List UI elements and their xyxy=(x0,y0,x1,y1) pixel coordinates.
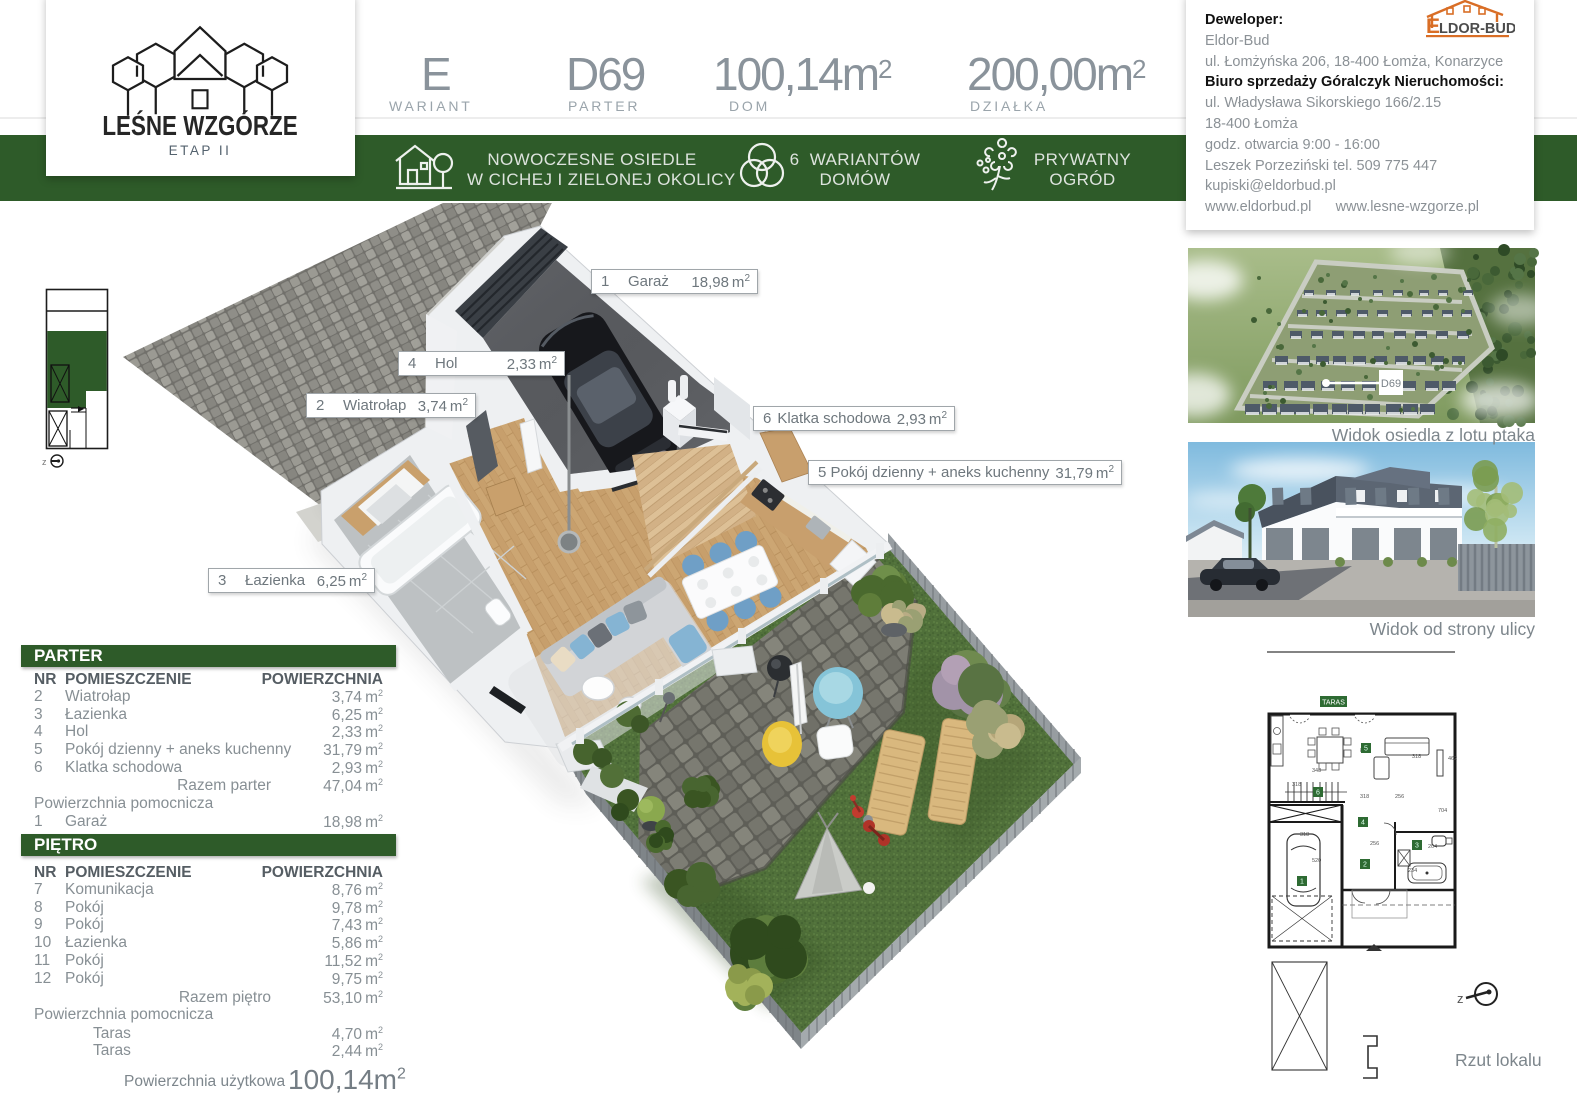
svg-text:z: z xyxy=(42,457,47,467)
svg-text:256: 256 xyxy=(1370,841,1379,847)
svg-text:D69: D69 xyxy=(1381,378,1401,390)
svg-text:204: 204 xyxy=(1428,844,1437,850)
svg-text:318: 318 xyxy=(1412,754,1421,760)
svg-text:3: 3 xyxy=(1415,843,1419,850)
svg-text:ETAP II: ETAP II xyxy=(169,143,232,158)
svg-text:462: 462 xyxy=(1448,756,1457,762)
svg-text:4: 4 xyxy=(1361,820,1365,827)
svg-text:LEŚNE WZGÓRZE: LEŚNE WZGÓRZE xyxy=(102,108,297,141)
svg-text:348: 348 xyxy=(1312,768,1321,774)
svg-text:1: 1 xyxy=(1300,879,1304,886)
svg-text:318: 318 xyxy=(1292,782,1301,788)
svg-text:2: 2 xyxy=(1363,862,1367,869)
svg-text:256: 256 xyxy=(1395,794,1404,800)
svg-text:z: z xyxy=(1457,991,1464,1006)
svg-text:318: 318 xyxy=(1300,832,1309,838)
svg-text:704: 704 xyxy=(1438,808,1447,814)
svg-text:E: E xyxy=(1426,15,1440,38)
svg-text:LDOR-BUD: LDOR-BUD xyxy=(1439,21,1515,37)
svg-text:318: 318 xyxy=(1360,794,1369,800)
svg-text:5: 5 xyxy=(1364,746,1368,753)
svg-text:6: 6 xyxy=(1316,790,1320,797)
svg-text:TARAS: TARAS xyxy=(1322,700,1345,707)
svg-text:520: 520 xyxy=(1312,858,1321,864)
svg-text:234: 234 xyxy=(1408,868,1417,874)
